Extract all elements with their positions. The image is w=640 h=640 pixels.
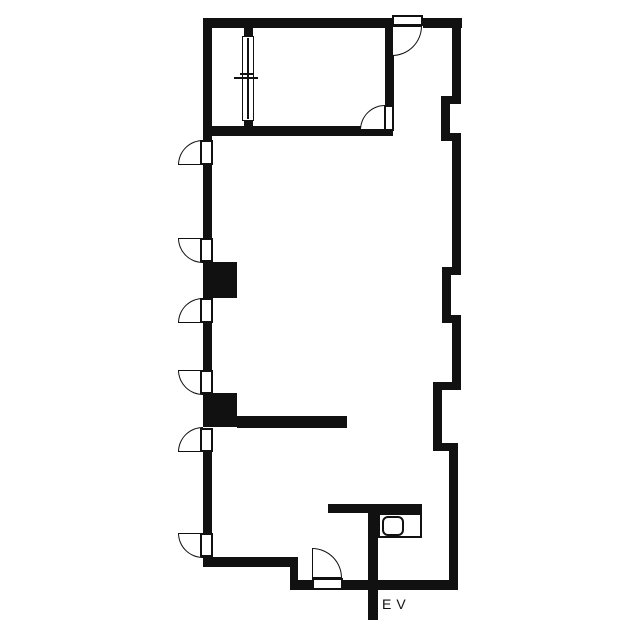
door-7-top-entry-leaf <box>392 15 423 26</box>
door-1-leaf <box>200 140 213 165</box>
pillar-2 <box>203 393 237 427</box>
door-9-bottom-entry-leaf <box>312 578 343 590</box>
elevator-counter-wall <box>328 504 422 513</box>
door-6-leaf <box>200 533 213 557</box>
right-wall-1 <box>452 18 461 104</box>
window-tick-2 <box>240 73 253 75</box>
left-wall-2 <box>203 165 212 238</box>
right-wall-3 <box>452 133 461 275</box>
left-wall-3 <box>203 323 212 370</box>
door-9-bottom-entry-swing-arc <box>312 548 342 578</box>
elevator-shaft-wall <box>368 504 378 620</box>
top-wall-left <box>203 18 392 28</box>
interior-partition-wall <box>237 416 347 428</box>
right-wall-5 <box>452 315 461 390</box>
floor-plan-canvas: EV <box>0 0 640 640</box>
window-tick-1 <box>234 77 258 79</box>
door-7-top-entry-swing-arc <box>392 26 422 56</box>
door-2-leaf <box>200 238 213 262</box>
bottom-wall-upper <box>203 557 298 567</box>
bottom-wall-lower-right <box>343 580 458 590</box>
bottom-wall-lower-left <box>298 580 312 590</box>
left-wall-top <box>203 18 212 140</box>
door-5-leaf <box>200 428 213 452</box>
right-wall-6 <box>433 382 442 451</box>
left-wall-4 <box>203 452 212 533</box>
bottom-step-connector <box>290 557 298 590</box>
elevator-car-icon <box>382 516 404 536</box>
door-8-room-swing-arc <box>360 105 385 130</box>
door-4-leaf <box>200 370 213 394</box>
elevator-label: EV <box>382 597 411 611</box>
right-wall-7 <box>449 443 458 590</box>
door-8-room-leaf <box>384 105 394 131</box>
floor-plan: EV <box>0 0 640 640</box>
door-3-leaf <box>200 298 213 323</box>
pillar-1 <box>203 262 237 298</box>
